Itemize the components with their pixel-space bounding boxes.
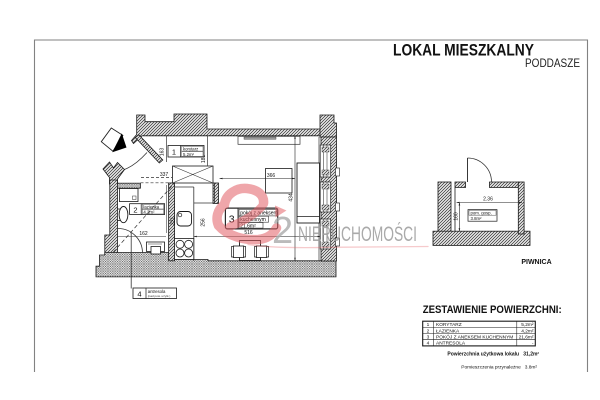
svg-text:PIWNICA: PIWNICA xyxy=(521,259,551,266)
svg-text:korytarz: korytarz xyxy=(183,147,198,152)
svg-text:1: 1 xyxy=(172,148,176,157)
svg-text:LOKAL MIESZKALNY: LOKAL MIESZKALNY xyxy=(393,42,534,60)
svg-text:2: 2 xyxy=(427,328,430,334)
svg-text:337: 337 xyxy=(160,172,169,178)
svg-text:434: 434 xyxy=(288,193,294,202)
svg-text:366: 366 xyxy=(267,173,276,179)
svg-text:2.36: 2.36 xyxy=(483,197,493,203)
svg-text:pom. gosp.: pom. gosp. xyxy=(471,211,492,216)
svg-text:4: 4 xyxy=(427,341,430,347)
svg-text:221: 221 xyxy=(170,217,176,226)
svg-text:ZESTAWIENIE POWIERZCHNI:: ZESTAWIENIE POWIERZCHNI: xyxy=(423,304,562,316)
svg-text:(nad pow. użytk.): (nad pow. użytk.) xyxy=(148,294,171,298)
svg-text:KORYTARZ: KORYTARZ xyxy=(436,322,462,328)
svg-text:160: 160 xyxy=(454,212,460,221)
svg-text:NIERUCHOMOŚCI: NIERUCHOMOŚCI xyxy=(298,222,417,246)
svg-text:5,2m²: 5,2m² xyxy=(521,322,534,328)
svg-text:POKÓJ Z ANEKSEM KUCHENNYM: POKÓJ Z ANEKSEM KUCHENNYM xyxy=(436,334,513,341)
svg-text:ANTRESOLA: ANTRESOLA xyxy=(436,341,466,347)
svg-text:Pomieszczenia przynależne 3.: Pomieszczenia przynależne 3.8m² xyxy=(461,365,537,371)
svg-text:163: 163 xyxy=(160,148,166,157)
svg-text:ŁAZIENKA: ŁAZIENKA xyxy=(436,328,460,334)
svg-text:4: 4 xyxy=(137,289,141,298)
svg-text:162: 162 xyxy=(139,231,148,237)
svg-text:3.8m²: 3.8m² xyxy=(471,216,483,221)
svg-text:5.2m²: 5.2m² xyxy=(183,152,195,157)
svg-text:3: 3 xyxy=(427,335,430,341)
svg-text:PODDASZE: PODDASZE xyxy=(525,58,580,70)
svg-text:21,6m²: 21,6m² xyxy=(519,335,534,341)
svg-text:4,2m²: 4,2m² xyxy=(521,328,534,334)
svg-text:2: 2 xyxy=(133,205,137,214)
svg-text:1: 1 xyxy=(427,322,430,328)
svg-text:Powierzchnia użytkowa lokalu: Powierzchnia użytkowa lokalu 31,2m² xyxy=(447,352,539,358)
svg-text:256: 256 xyxy=(201,218,207,227)
svg-text:2: 2 xyxy=(272,210,293,252)
